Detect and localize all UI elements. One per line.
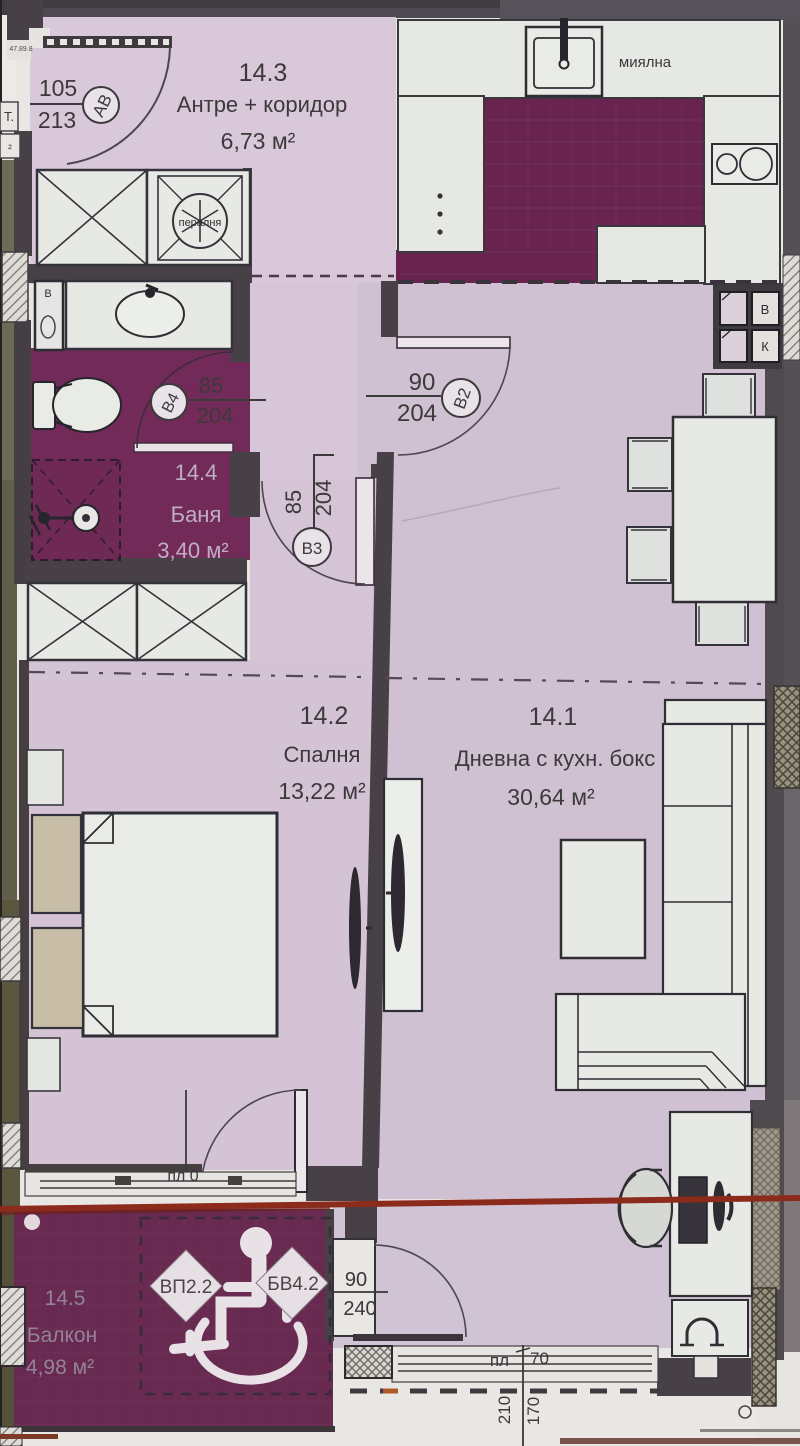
svg-text:Баня: Баня	[171, 502, 222, 527]
svg-text:213: 213	[38, 107, 76, 133]
svg-text:Спалня: Спалня	[284, 742, 361, 767]
svg-text:70: 70	[530, 1349, 549, 1368]
svg-text:30,64 м²: 30,64 м²	[507, 784, 595, 810]
svg-text:13,22 м²: 13,22 м²	[278, 778, 366, 804]
svg-text:²: ²	[8, 143, 12, 155]
svg-text:6,73 м²: 6,73 м²	[221, 128, 296, 154]
svg-text:204: 204	[311, 480, 336, 517]
svg-text:В3: В3	[302, 539, 323, 558]
svg-text:В: В	[761, 302, 770, 317]
svg-text:К: К	[761, 339, 769, 354]
svg-text:3,40 м²: 3,40 м²	[157, 538, 228, 563]
svg-text:14.2: 14.2	[300, 702, 349, 730]
svg-text:14.4: 14.4	[175, 460, 218, 485]
svg-text:210: 210	[495, 1396, 514, 1424]
svg-text:14.5: 14.5	[45, 1287, 86, 1310]
svg-text:пл: пл	[490, 1351, 509, 1370]
svg-text:90: 90	[409, 369, 436, 396]
svg-text:Балкон: Балкон	[27, 1324, 97, 1347]
svg-text:4,98 м²: 4,98 м²	[26, 1356, 94, 1379]
svg-text:пл 0: пл 0	[167, 1168, 198, 1185]
svg-text:90: 90	[345, 1269, 367, 1291]
svg-text:Т.: Т.	[4, 109, 14, 124]
svg-text:47.89.8: 47.89.8	[9, 46, 32, 53]
svg-text:В: В	[44, 288, 51, 300]
svg-text:204: 204	[397, 400, 437, 427]
svg-text:14.1: 14.1	[529, 703, 578, 731]
svg-text:240: 240	[343, 1298, 376, 1320]
svg-text:14.3: 14.3	[239, 59, 288, 87]
svg-text:Дневна с кухн. бокс: Дневна с кухн. бокс	[455, 746, 656, 771]
svg-text:85: 85	[281, 490, 306, 514]
svg-text:170: 170	[524, 1397, 543, 1425]
svg-text:204: 204	[197, 403, 234, 428]
svg-text:Антре + коридор: Антре + коридор	[177, 92, 347, 117]
svg-text:пералня: пералня	[179, 217, 222, 229]
svg-text:БВ4.2: БВ4.2	[267, 1274, 319, 1295]
svg-text:105: 105	[39, 75, 77, 101]
svg-text:ВП2.2: ВП2.2	[160, 1277, 213, 1298]
svg-text:85: 85	[199, 373, 223, 398]
svg-text:миялна: миялна	[619, 54, 672, 71]
